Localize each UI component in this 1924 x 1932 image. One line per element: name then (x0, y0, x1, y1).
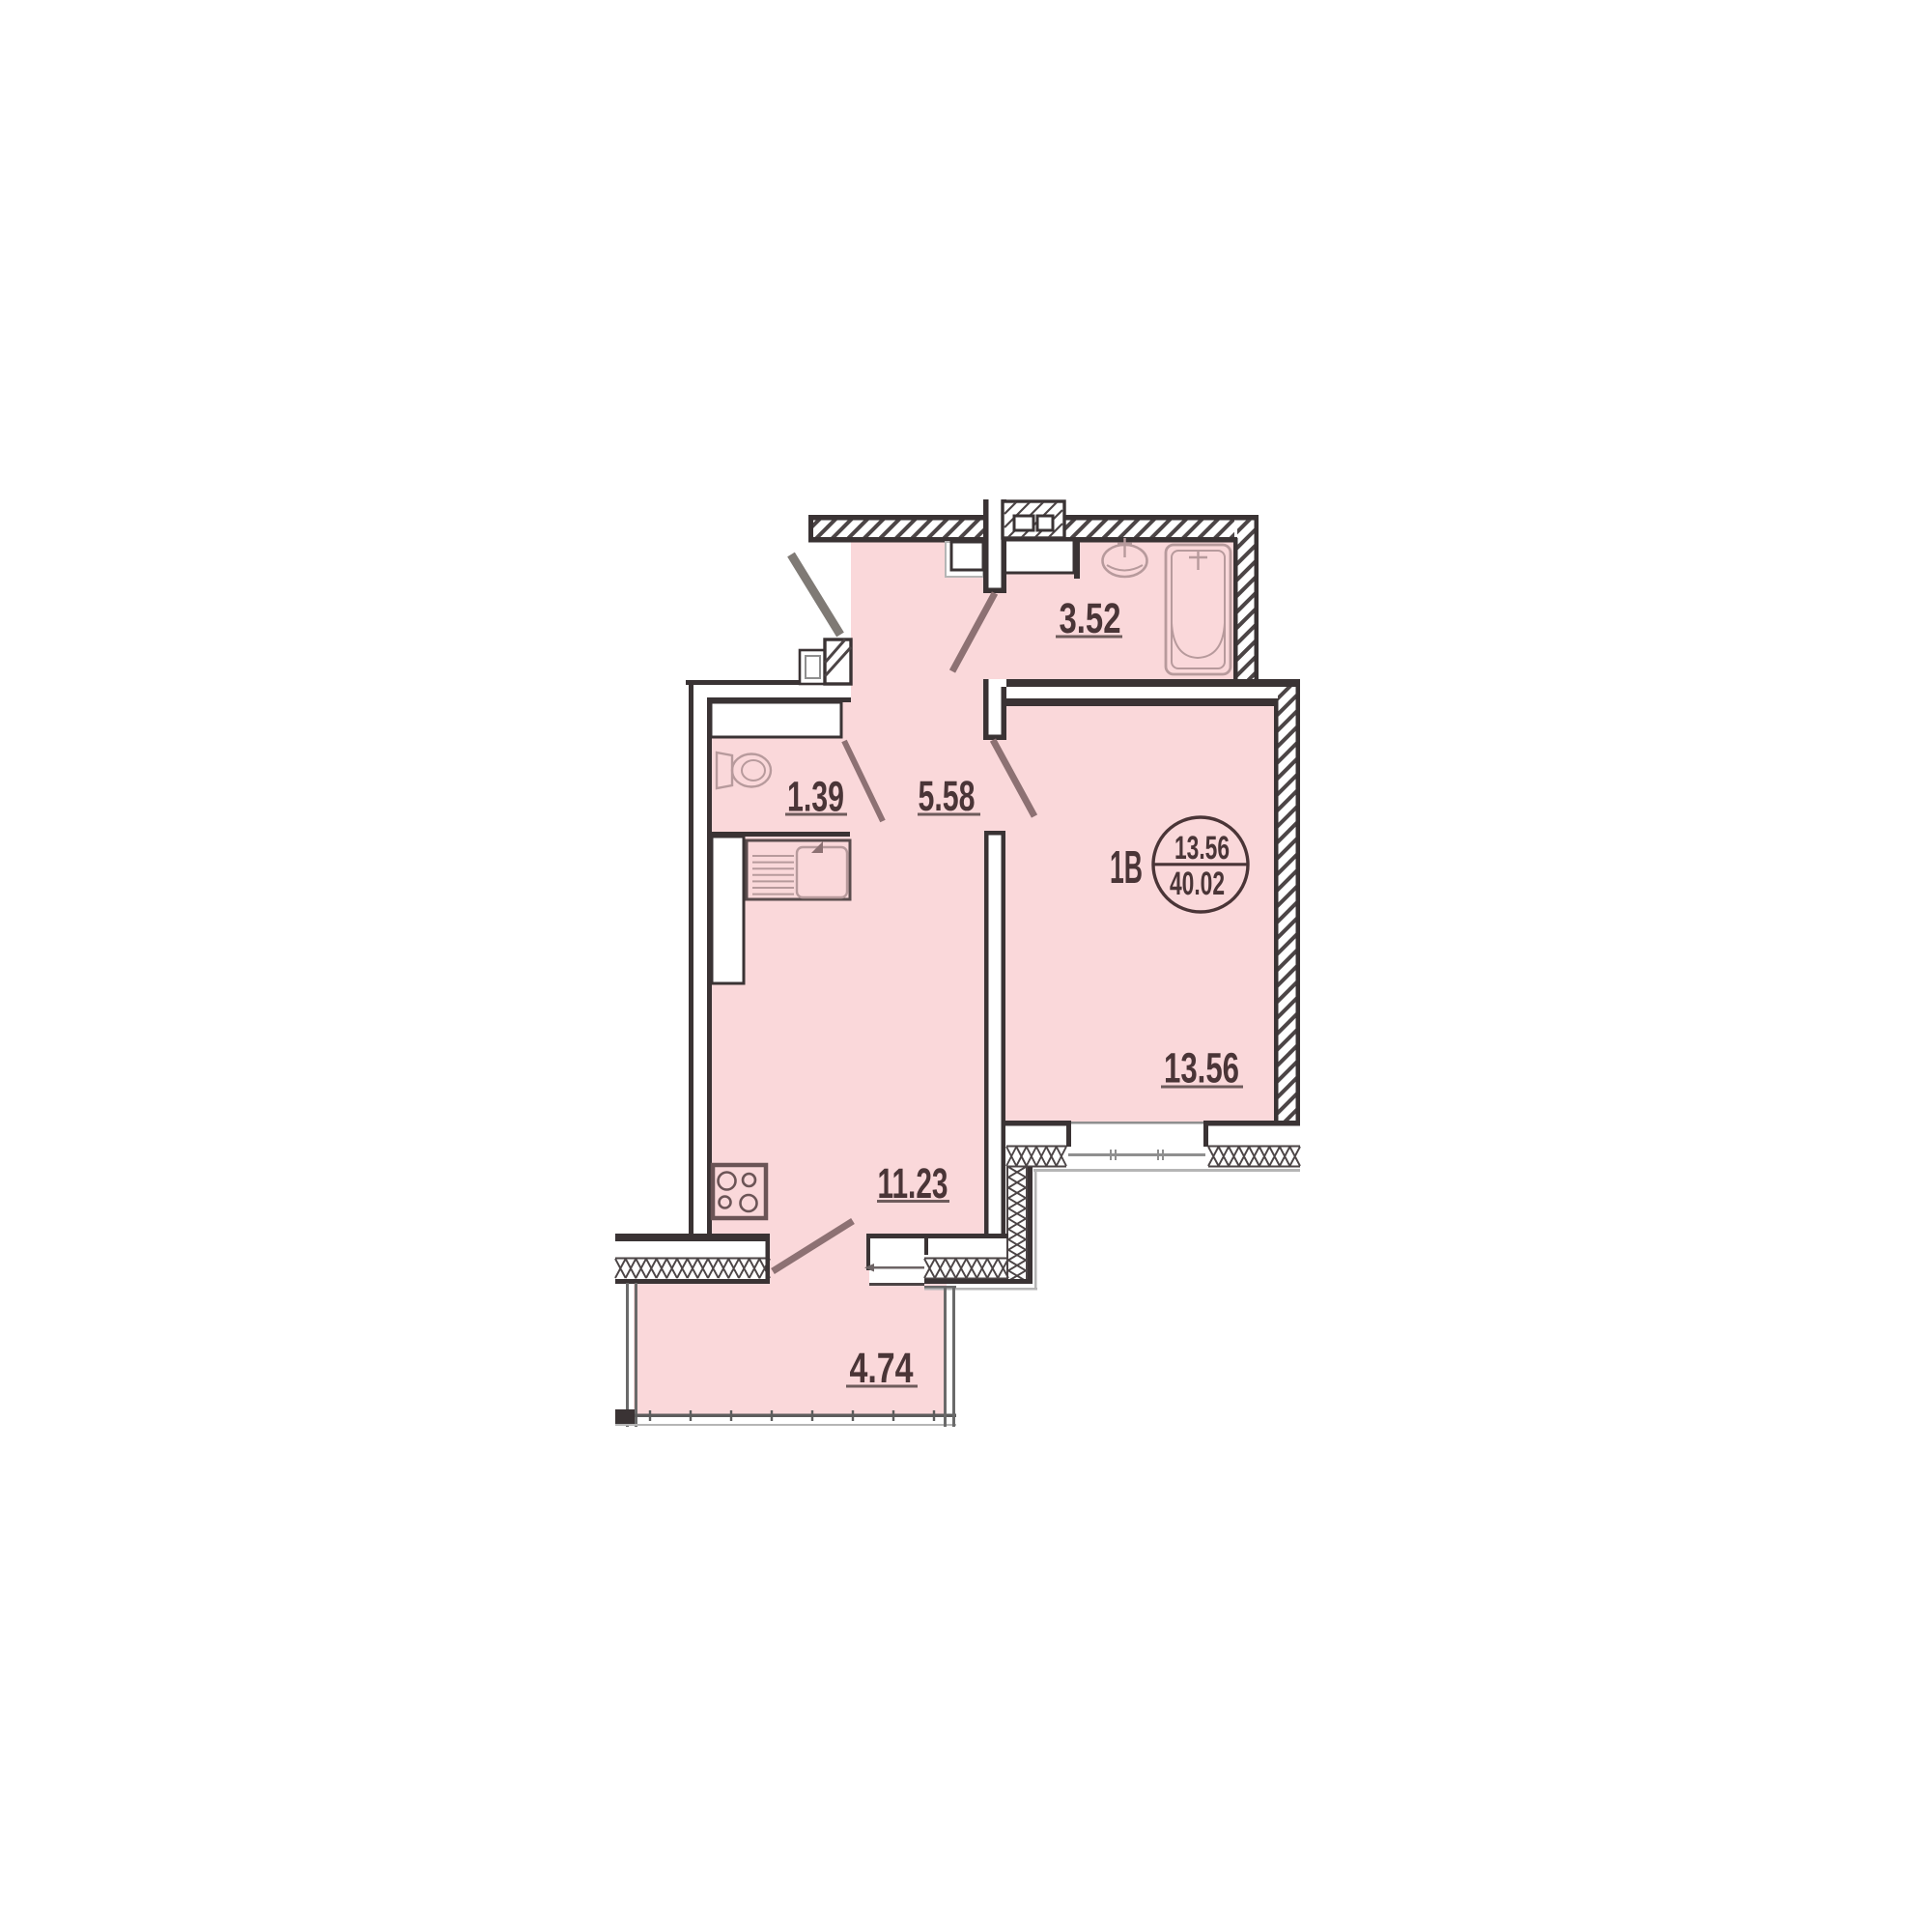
svg-text:13.56: 13.56 (1164, 1045, 1239, 1093)
svg-text:1B: 1B (1110, 842, 1143, 894)
svg-text:40.02: 40.02 (1170, 866, 1225, 902)
svg-text:13.56: 13.56 (1174, 830, 1230, 867)
